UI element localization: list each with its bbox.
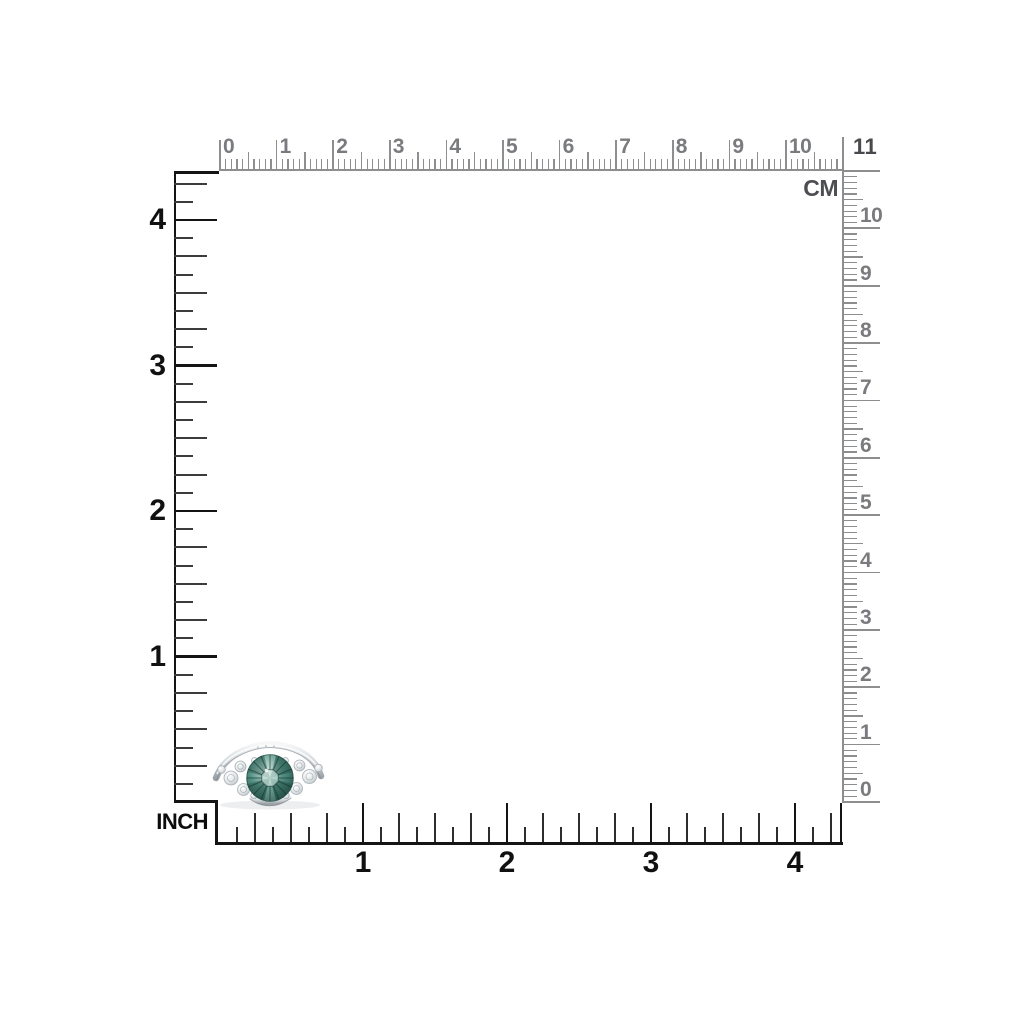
- inch-bottom-tick: [362, 803, 365, 842]
- cm-end-number: 11: [853, 136, 877, 158]
- inch-bottom-tick: [812, 827, 814, 842]
- inch-unit-label: INCH: [148, 811, 208, 833]
- product-scale-image: 012345678910 109876543210 4321 1234 CM 1…: [0, 0, 1010, 1010]
- inch-bottom-tick: [668, 827, 670, 842]
- inch-bottom-tick: [776, 827, 778, 842]
- inch-bottom-tick: [704, 827, 706, 842]
- inch-bottom-tick: [254, 813, 256, 842]
- ring-center-gem: [247, 755, 293, 801]
- inch-bottom-tick: [542, 813, 544, 842]
- inch-bottom-tick: [452, 827, 454, 842]
- inch-bottom-tick: [326, 813, 328, 842]
- inch-bottom-tick: [560, 827, 562, 842]
- inch-bottom-tick: [272, 827, 274, 842]
- cm-unit-label: CM: [791, 177, 838, 200]
- ring-left-stone-cluster: [218, 761, 250, 796]
- inch-bottom-tick: [830, 813, 832, 842]
- ring-product-photo: [203, 733, 331, 813]
- inch-bottom-tick: [488, 827, 490, 842]
- inch-bottom-tick: [722, 813, 724, 842]
- inch-bottom-number: 4: [779, 848, 811, 878]
- inch-bottom-tick: [632, 827, 634, 842]
- inch-bottom-number: 1: [347, 848, 379, 878]
- inch-bottom-tick: [344, 827, 346, 842]
- inch-bottom-tick: [434, 813, 436, 842]
- ring-right-stone-cluster: [291, 760, 323, 795]
- inch-bottom-tick: [236, 827, 238, 842]
- inch-bottom-tick: [614, 813, 616, 842]
- inch-bottom-tick: [794, 803, 797, 842]
- inch-bottom-tick: [686, 813, 688, 842]
- inch-bottom-number: 2: [491, 848, 523, 878]
- inch-bottom-tick: [308, 827, 310, 842]
- gem-sparkle: [265, 769, 269, 773]
- inch-bottom-tick: [416, 827, 418, 842]
- inch-bottom-tick: [290, 813, 292, 842]
- inch-bottom-tick: [578, 813, 580, 842]
- inch-bottom-tick: [470, 813, 472, 842]
- inch-bottom-tick: [740, 827, 742, 842]
- inch-bottom-tick: [596, 827, 598, 842]
- inch-bottom-tick: [380, 827, 382, 842]
- inch-bottom-tick: [524, 827, 526, 842]
- inch-bottom-tick: [650, 803, 653, 842]
- inch-bottom-tick: [506, 803, 509, 842]
- inch-bottom-number: 3: [635, 848, 667, 878]
- inch-bottom-tick: [758, 813, 760, 842]
- inch-bottom-tick: [398, 813, 400, 842]
